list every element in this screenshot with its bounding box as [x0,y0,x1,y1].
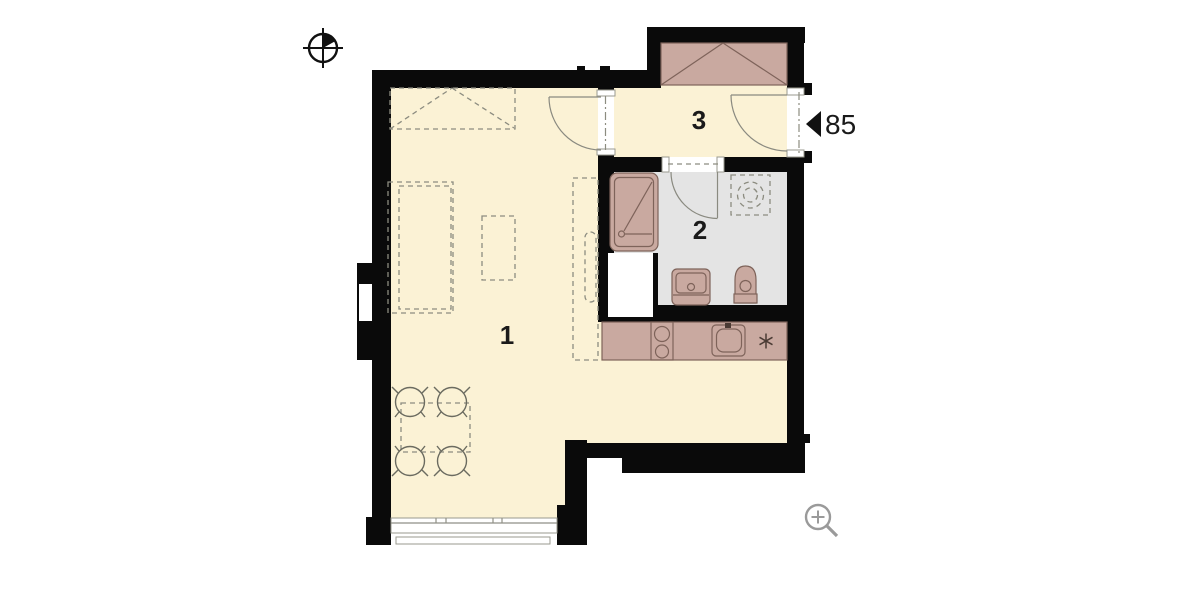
room-2-label: 2 [693,215,707,245]
wall-top-entry [647,27,805,43]
washbasin [672,269,710,305]
wall-left [372,70,391,545]
room-1-label: 1 [500,320,514,350]
entrance-door-dimension: 85 [806,109,856,140]
door-width-arrow-icon [806,111,821,137]
wall-top [372,70,650,88]
door-jamb [787,150,804,157]
door-jamb [787,88,804,95]
kitchen-counter [602,322,787,360]
kitchen-tap [725,323,731,328]
door-jamb [662,157,669,172]
door-opening-entrance [787,93,804,153]
floor-plan: 1 2 3 85 [0,0,1200,600]
shower-tray [610,173,658,251]
north-compass-icon [303,28,343,68]
wall-right-upper [787,27,804,95]
wall-nub-entry-bottom [804,151,812,163]
window-sill [396,537,550,544]
door-width-value: 85 [825,109,856,140]
installation-shaft [608,253,656,317]
shaft-wall-edge [653,253,658,317]
wall-step-bottom-foot [557,505,587,545]
toilet [734,266,757,303]
wall-nub-right-bottom [804,434,810,443]
door-jamb [717,157,724,172]
left-wall-niche [359,284,372,321]
wall-nub-entry-top [804,83,812,95]
zoom-in-icon[interactable] [806,505,837,536]
wall-nub-top-b [600,66,610,72]
wall-nub-top-a [577,66,585,72]
door-jamb [597,90,615,96]
room-3-label: 3 [692,105,706,135]
wall-left-foot [366,517,391,545]
window [391,518,557,544]
wardrobe [661,43,787,85]
wall-right-lower [787,151,804,473]
door-opening-bathroom [668,157,718,172]
floor-plan-canvas: 1 2 3 85 [0,0,1200,600]
toilet-base [734,294,757,303]
bottom-wall-notch [587,458,622,473]
